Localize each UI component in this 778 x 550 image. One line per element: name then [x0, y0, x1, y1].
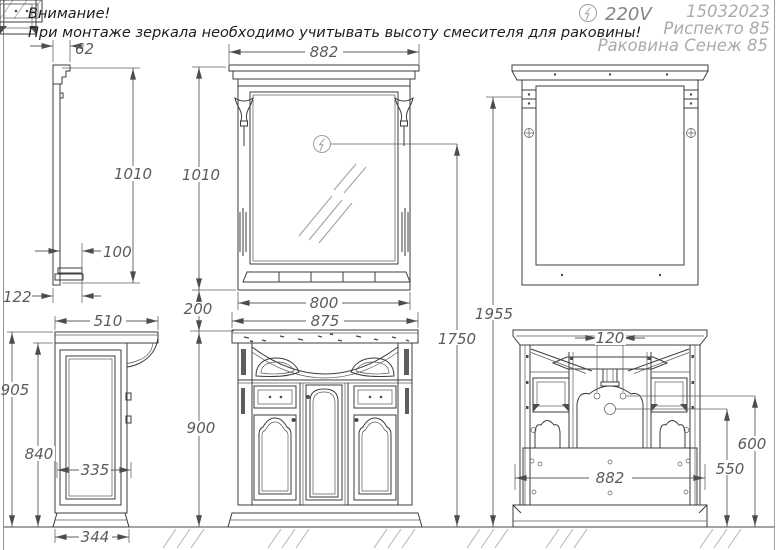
- siphon-panel: [577, 386, 643, 448]
- dim-hole-height: 600: [738, 435, 767, 453]
- electric-point-icon: [314, 136, 331, 153]
- pilaster-detail: [241, 388, 245, 414]
- dim-mirror-crown-depth: 62: [75, 40, 94, 58]
- drawer-rear: [651, 378, 687, 412]
- dim-cab-side-panel: 335: [81, 461, 110, 479]
- door-arch-rear: [660, 421, 685, 449]
- drawer-rear: [533, 378, 569, 412]
- post-fluting: [402, 208, 408, 256]
- dim-socket-height: 1750: [438, 330, 476, 348]
- electric-supply-icon: [580, 5, 597, 22]
- countertop-speckles: [244, 334, 409, 342]
- dim-cab-side-top-depth: 510: [94, 312, 123, 330]
- drawing-canvas: 62 1010 100 122 882 1010 800 200 900 510…: [0, 0, 778, 550]
- screw-icon: [687, 129, 696, 138]
- dim-mirror-total-depth: 122: [3, 288, 32, 306]
- drawer-front: [354, 386, 396, 408]
- drain-hole: [605, 404, 616, 415]
- basin-rear: [531, 349, 689, 386]
- cabinet-side-view: [7, 316, 158, 543]
- dim-cab-side-base: 344: [81, 528, 110, 546]
- notice-line2: При монтаже зеркала необходимо учитывать…: [28, 25, 641, 41]
- pilaster-detail: [241, 349, 246, 375]
- side-door: [254, 415, 296, 500]
- door-knob: [306, 395, 310, 399]
- dim-cab-rear-width: 882: [596, 469, 625, 487]
- technical-drawing-sheet: 62 1010 100 122 882 1010 800 200 900 510…: [0, 0, 778, 550]
- dim-mirror-width: 882: [310, 43, 339, 61]
- floor-line: [0, 0, 774, 548]
- dim-mirror-side-height: 1010: [114, 165, 152, 183]
- sink-name: Раковина Сенеж 85: [598, 36, 768, 55]
- dim-drain-height: 550: [716, 460, 745, 478]
- floor-hatch: [163, 529, 204, 548]
- notice: Внимание! При монтаже зеркала необходимо…: [28, 6, 641, 41]
- drawer-front: [254, 386, 296, 408]
- mirror-front-view: [190, 44, 457, 332]
- dim-bracket-height: 1955: [475, 305, 513, 323]
- notice-line1: Внимание!: [28, 6, 110, 22]
- dim-mirror-shelf-depth: 100: [103, 243, 132, 261]
- glass-reflection: [299, 164, 366, 243]
- dim-cab-side-height: 905: [1, 381, 30, 399]
- center-door: [306, 385, 342, 500]
- pilaster-detail: [404, 349, 409, 375]
- floor-hatch: [374, 529, 415, 548]
- mounting-bracket-icon: [522, 90, 536, 108]
- label-masks: [4, 44, 771, 544]
- floor-hatch: [546, 529, 587, 548]
- dim-cab-side-body-height: 840: [25, 445, 54, 463]
- voltage-label: 220V: [605, 4, 653, 25]
- dim-cabinet-height: 900: [187, 419, 216, 437]
- pilaster-detail: [405, 388, 409, 414]
- door-arch-rear: [535, 421, 560, 449]
- floor-hatch: [268, 529, 309, 548]
- mounting-bracket-icon: [684, 90, 698, 108]
- floor-hatch: [467, 529, 508, 548]
- screw-icon: [525, 129, 534, 138]
- drain-pipe: [603, 369, 617, 382]
- post-fluting: [240, 208, 246, 256]
- mount-hole: [594, 393, 600, 399]
- dim-cab-front-width: 875: [311, 312, 340, 330]
- dim-mirror-front-height: 1010: [182, 166, 220, 184]
- floor-hatch: [700, 529, 741, 548]
- dim-drain-holes-spacing: 120: [596, 329, 625, 347]
- dim-gap: 200: [184, 300, 213, 318]
- mount-hole: [620, 393, 626, 399]
- dim-mirror-body-width: 800: [310, 294, 339, 312]
- side-door: [354, 415, 396, 500]
